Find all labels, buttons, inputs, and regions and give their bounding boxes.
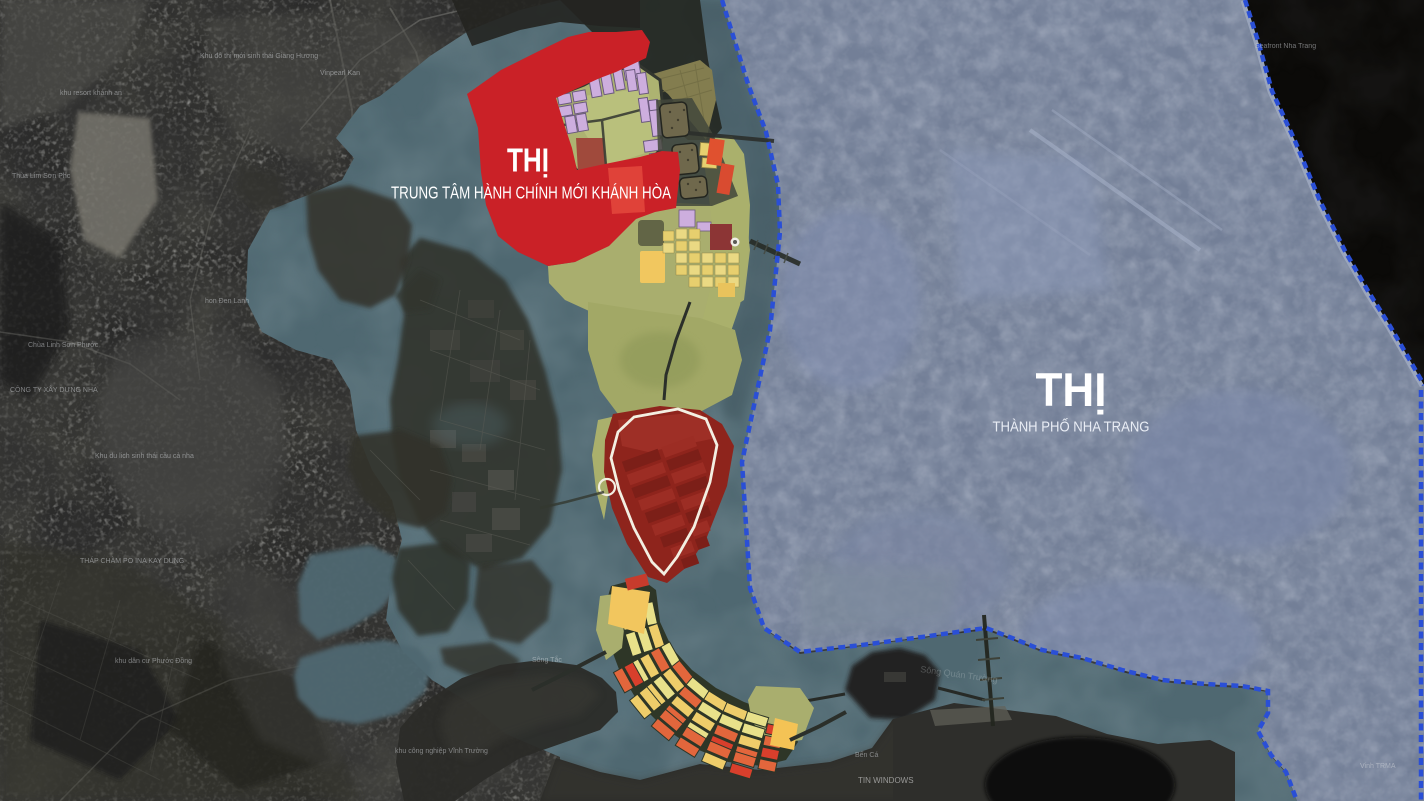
- svg-text:Vinh TRMA: Vinh TRMA: [1360, 763, 1396, 770]
- svg-text:THỊ: THỊ: [507, 142, 549, 179]
- svg-text:THỊ: THỊ: [1036, 363, 1107, 416]
- svg-text:khu dân cư Phước Đồng: khu dân cư Phước Đồng: [115, 656, 192, 665]
- svg-text:khu resort khánh an: khu resort khánh an: [60, 90, 122, 97]
- svg-text:TIN WINDOWS: TIN WINDOWS: [858, 776, 914, 785]
- svg-text:Vinpearl Kan: Vinpearl Kan: [320, 70, 360, 77]
- svg-text:hon Đen Lanh: hon Đen Lanh: [205, 298, 249, 305]
- svg-text:Seafront Nha Trang: Seafront Nha Trang: [1255, 43, 1316, 50]
- svg-text:Chùa Linh Sơn Phước: Chùa Linh Sơn Phước: [28, 342, 99, 349]
- svg-text:THÁP CHÀM PO INA KAY DUNG: THÁP CHÀM PO INA KAY DUNG: [80, 556, 184, 565]
- svg-text:CÔNG TY XÂY DỰNG NHA: CÔNG TY XÂY DỰNG NHA: [10, 385, 98, 394]
- svg-text:TRUNG TÂM HÀNH CHÍNH MỚI KHÁNH: TRUNG TÂM HÀNH CHÍNH MỚI KHÁNH HÒA: [391, 182, 671, 203]
- svg-text:Thùa Lim Sơn Phc: Thùa Lim Sơn Phc: [12, 173, 71, 180]
- svg-text:THÀNH PHỐ NHA TRANG: THÀNH PHỐ NHA TRANG: [993, 418, 1150, 436]
- svg-text:Khu đô thị mới sinh thái Giang: Khu đô thị mới sinh thái Giang Hương: [200, 53, 318, 60]
- svg-text:Bến Cá: Bến Cá: [855, 750, 878, 759]
- svg-text:Sông Tắc: Sông Tắc: [532, 655, 562, 664]
- svg-text:Khu du lich sinh thái cầu cả n: Khu du lich sinh thái cầu cả nha: [95, 451, 194, 460]
- svg-text:khu công nghiệp Vĩnh Trường: khu công nghiệp Vĩnh Trường: [395, 748, 488, 755]
